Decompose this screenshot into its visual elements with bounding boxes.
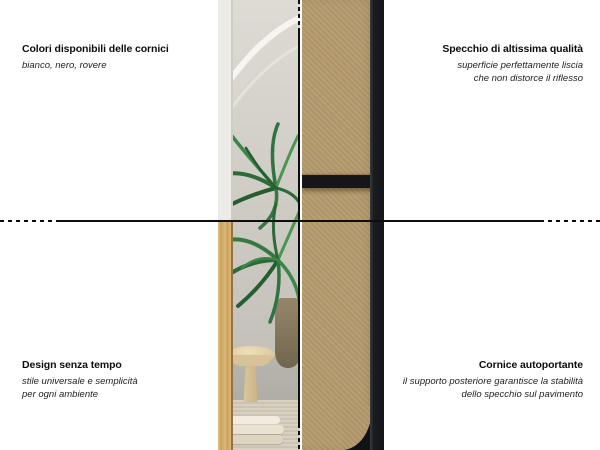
guide-line-dotted-right [540, 220, 600, 222]
annotation-title: Specchio di altissima qualità [442, 42, 583, 56]
divider-dashed-bottom [298, 424, 300, 450]
annotation-subtitle: superficie perfettamente liscia che non … [442, 59, 583, 86]
divider-vertical [298, 28, 300, 424]
guide-line-dotted-left [0, 220, 58, 222]
annotation-timeless-design: Design senza tempo stile universale e se… [22, 358, 138, 402]
frame-color-white [218, 0, 233, 221]
annotation-title: Colori disponibili delle cornici [22, 42, 169, 56]
frame-color-rovere [218, 221, 233, 450]
annotation-title: Design senza tempo [22, 358, 138, 372]
product-infographic: Colori disponibili delle cornici bianco,… [0, 0, 600, 450]
frame-side-bar [370, 0, 384, 450]
back-view-photo [302, 0, 384, 450]
wooden-stool-bowl [230, 355, 272, 366]
annotation-subtitle: il supporto posteriore garantisce la sta… [403, 375, 583, 402]
annotation-mirror-quality: Specchio di altissima qualità superficie… [442, 42, 583, 86]
front-view-photo [218, 0, 300, 450]
annotation-subtitle: bianco, nero, rovere [22, 59, 169, 72]
annotation-title: Cornice autoportante [403, 358, 583, 372]
annotation-freestanding-frame: Cornice autoportante il supporto posteri… [403, 358, 583, 402]
annotation-frame-colors: Colori disponibili delle cornici bianco,… [22, 42, 169, 72]
rolled-towel [225, 435, 283, 444]
divider-dashed-top [298, 0, 300, 28]
annotation-subtitle: stile universale e semplicità per ogni a… [22, 375, 138, 402]
